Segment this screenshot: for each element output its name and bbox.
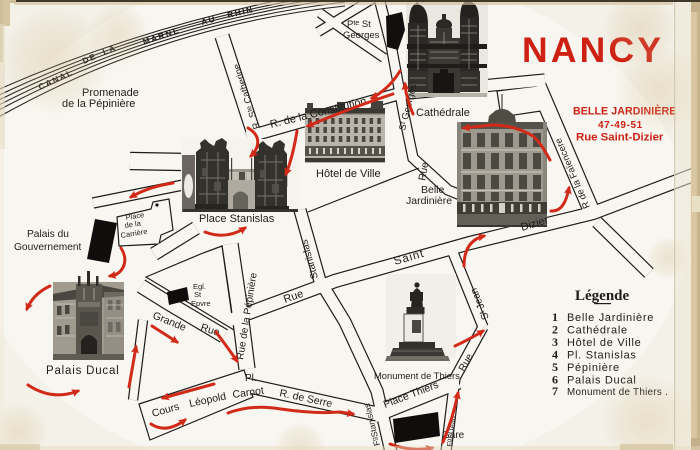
svg-text:Gouvernement: Gouvernement <box>14 242 82 253</box>
svg-text:Cathédrale: Cathédrale <box>416 107 470 119</box>
svg-text:Hôtel de Ville: Hôtel de Ville <box>567 337 641 349</box>
svg-text:Place Stanislas: Place Stanislas <box>199 213 275 225</box>
svg-text:Pépinière: Pépinière <box>567 362 620 374</box>
svg-text:Epvre: Epvre <box>191 299 211 308</box>
svg-text:Georges: Georges <box>343 30 380 41</box>
svg-text:Pl. Stanislas: Pl. Stanislas <box>567 350 637 362</box>
svg-text:St: St <box>194 290 202 299</box>
svg-text:Hôtel de Ville: Hôtel de Ville <box>316 168 381 180</box>
svg-text:Pl.: Pl. <box>245 373 257 384</box>
svg-text:Palais du: Palais du <box>27 229 69 240</box>
svg-text:Pte St: Pte St <box>347 19 371 30</box>
svg-text:Légende: Légende <box>575 288 630 304</box>
svg-text:Jardinière: Jardinière <box>406 195 452 207</box>
svg-text:Belle Jardinière: Belle Jardinière <box>567 312 654 324</box>
svg-text:Palais Ducal: Palais Ducal <box>46 365 120 377</box>
svg-text:Monument de Thiers: Monument de Thiers <box>374 370 460 381</box>
svg-text:Cathédrale: Cathédrale <box>567 325 628 337</box>
svg-text:7: 7 <box>552 384 558 398</box>
